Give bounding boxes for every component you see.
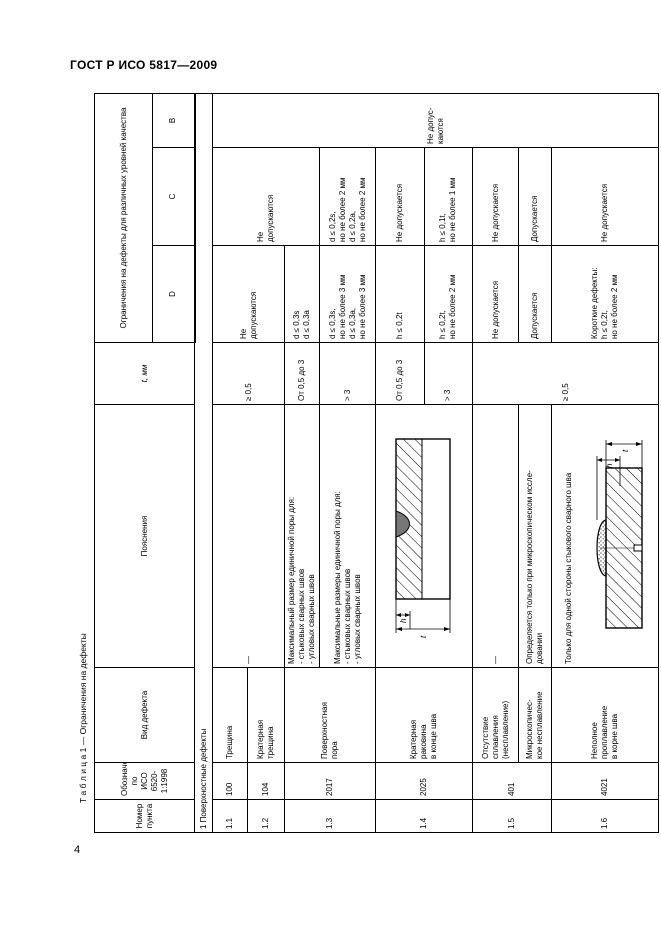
row-1-5b: Микроскопичес- кое несплавление Определя… xyxy=(519,93,552,832)
cell-1-5b-defect-type: Микроскопичес- кое несплавление xyxy=(519,668,552,763)
cell-1-2-designation: 104 xyxy=(248,763,285,800)
cell-1-4-defect-type: Кратерная раковина в конце шва xyxy=(376,668,473,763)
cell-1-2-defect-type: Кратерная трещина xyxy=(248,668,285,763)
cell-1-3a-level-d: d ≤ 0,3s d ≤ 0,3a xyxy=(285,246,320,343)
cell-1-4a-level-d: h ≤ 0,2t xyxy=(376,246,425,343)
table-caption: Т а б л и ц а 1 — Ограничения на дефекты xyxy=(78,94,94,833)
cell-1-4b-thickness: > 3 xyxy=(424,343,473,405)
col-header-iso-designation: Обозначение по ИСО 6520-1:1998 xyxy=(95,763,195,800)
cell-1-6-explanation: Только для одной стороны стыкового сварн… xyxy=(552,405,659,668)
cell-1-5b-level-c: Допускается xyxy=(519,148,552,246)
col-header-limits-group: Ограничения на дефекты для различных уро… xyxy=(95,93,153,342)
cell-1-1-1-2-level-d: Не допускаются xyxy=(213,246,285,343)
defects-table: Номер пункта Обозначение по ИСО 6520-1:1… xyxy=(94,93,659,833)
cell-1-4a-level-c: Не допускается xyxy=(376,148,425,246)
cell-1-4b-level-d: h ≤ 0,2t, но не более 2 мм xyxy=(424,246,473,343)
col-header-level-c: C xyxy=(153,148,195,246)
row-1-5a: 1.5 401 Отсутствие сплавления (несплавле… xyxy=(473,93,519,832)
cell-1-1-1-2-explanation: — xyxy=(213,405,285,668)
cell-1-5b-level-d: Допускается xyxy=(519,246,552,343)
cell-level-b-merged: Не допус-каются xyxy=(213,93,659,147)
svg-text:h: h xyxy=(399,618,408,623)
cell-1-5-number: 1.5 xyxy=(473,800,552,833)
incomplete-root-penetration-diagram: t h xyxy=(590,436,646,636)
cell-1-6-level-c: Не допускается xyxy=(552,148,659,246)
cell-1-3-designation: 2017 xyxy=(285,763,376,800)
svg-text:h: h xyxy=(605,463,614,468)
cell-1-3b-level-d: d ≤ 0,3s, но не более 3 мм d ≤ 0,3a, но … xyxy=(320,246,376,343)
svg-text:t: t xyxy=(419,635,428,638)
col-header-level-d: D xyxy=(153,246,195,343)
cell-1-5a-explanation: — xyxy=(473,405,519,668)
cell-1-6-number: 1.6 xyxy=(552,800,659,833)
crater-pipe-diagram: h t xyxy=(390,431,460,641)
cell-1-1-to-1-3-level-c: Не допускаются xyxy=(213,148,320,246)
cell-1-3-number: 1.3 xyxy=(285,800,376,833)
cell-1-5a-level-d: Не допускается xyxy=(473,246,519,343)
cell-1-4-designation: 2025 xyxy=(376,763,473,800)
document-code: ГОСТ Р ИСО 5817—2009 xyxy=(70,58,217,72)
row-1-1: 1.1 100 Трещина — ≥ 0,5 Не допускаются Н… xyxy=(213,93,248,832)
cell-1-3b-thickness: > 3 xyxy=(320,343,376,405)
col-header-defect-type: Вид дефекта xyxy=(95,668,195,763)
col-header-point-number: Номер пункта xyxy=(95,800,195,833)
section-1-title: 1 Поверхностные дефекты xyxy=(195,93,213,832)
cell-1-3b-explanation: Максимальные размеры единичной поры для:… xyxy=(320,405,376,668)
col-header-thickness: t, мм xyxy=(95,343,195,405)
col-header-explanations: Пояснения xyxy=(95,405,195,668)
cell-1-1-number: 1.1 xyxy=(213,800,248,833)
rotated-table-block: Т а б л и ц а 1 — Ограничения на дефекты… xyxy=(78,94,617,833)
cell-1-4-number: 1.4 xyxy=(376,800,473,833)
col-header-level-b: B xyxy=(153,93,195,147)
cell-1-5-1-6-thickness: ≥ 0,5 xyxy=(473,343,659,405)
cell-1-5-designation: 401 xyxy=(473,763,552,800)
page: { "page": { "doc_code": "ГОСТ Р ИСО 5817… xyxy=(0,0,661,936)
page-number: 4 xyxy=(74,844,80,856)
cell-1-4b-level-c: h ≤ 0,1t, но не более 1 мм xyxy=(424,148,473,246)
row-1-4a: 1.4 2025 Кратерная раковина в конце шва xyxy=(376,93,425,832)
cell-1-2-number: 1.2 xyxy=(248,800,285,833)
cell-1-3a-thickness: От 0,5 до 3 xyxy=(285,343,320,405)
cell-1-6-explanation-text: Только для одной стороны стыкового сварн… xyxy=(564,408,574,664)
cell-1-1-defect-type: Трещина xyxy=(213,668,248,763)
cell-1-3a-explanation: Максимальный размер единичной поры для: … xyxy=(285,405,320,668)
cell-1-4-explanation-figure: h t xyxy=(376,405,473,668)
cell-1-4a-thickness: От 0,5 до 3 xyxy=(376,343,425,405)
cell-1-5a-level-c: Не допускается xyxy=(473,148,519,246)
row-1-6: 1.6 4021 Неполное проплавление в корне ш… xyxy=(552,93,659,832)
cell-1-1-designation: 100 xyxy=(213,763,248,800)
cell-1-3-defect-type: Поверхностная пора xyxy=(285,668,376,763)
cell-1-6-designation: 4021 xyxy=(552,763,659,800)
cell-1-3b-level-c: d ≤ 0,2s, но не более 2 мм d ≤ 0,2a, но … xyxy=(320,148,376,246)
cell-1-6-level-d: Короткие дефекты: h ≤ 0,2t, но не более … xyxy=(552,246,659,343)
svg-text:t: t xyxy=(621,449,630,452)
cell-1-5b-explanation: Определяется только при микроскопическом… xyxy=(519,405,552,668)
cell-1-5a-defect-type: Отсутствие сплавления (несплавление) xyxy=(473,668,519,763)
cell-1-6-defect-type: Неполное проплавление в корне шва xyxy=(552,668,659,763)
cell-1-1-1-2-thickness: ≥ 0,5 xyxy=(213,343,285,405)
